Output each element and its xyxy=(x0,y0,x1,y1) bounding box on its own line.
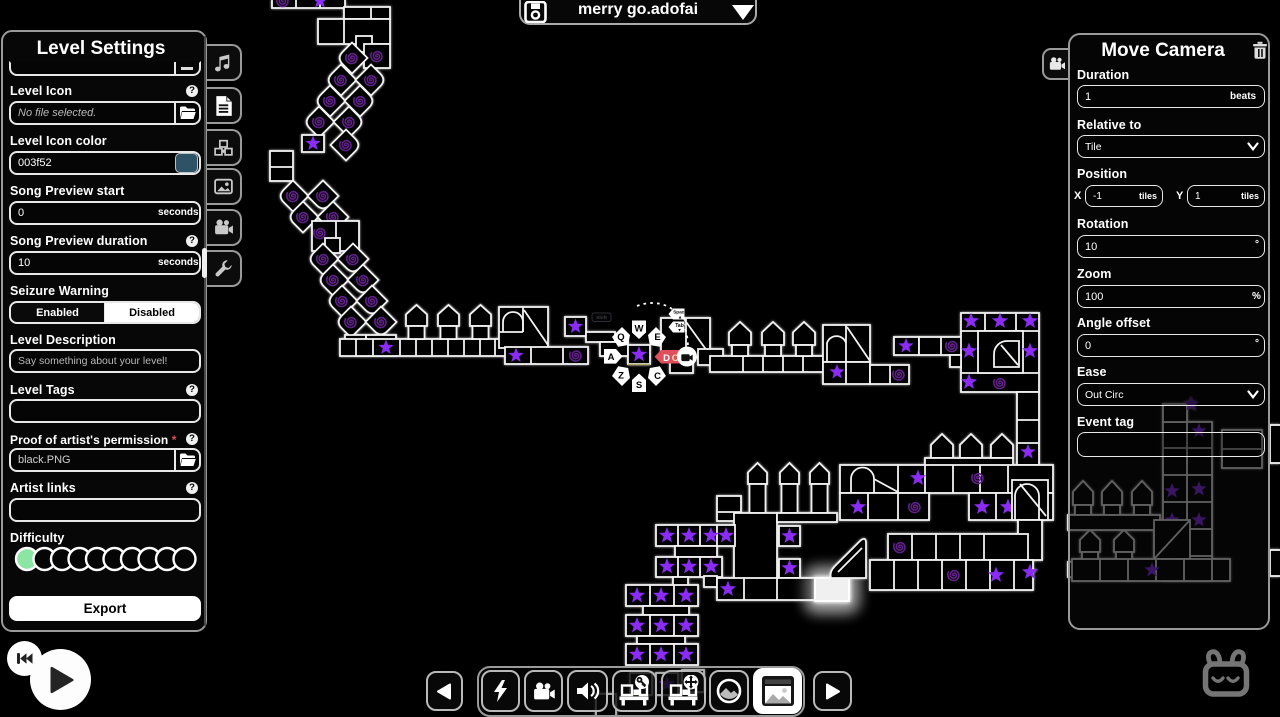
svg-text:D: D xyxy=(663,353,670,364)
svg-text:A: A xyxy=(608,352,615,363)
svg-text:Q: Q xyxy=(617,332,624,343)
svg-text:▲: ▲ xyxy=(678,315,682,320)
svg-text:S: S xyxy=(636,380,642,391)
svg-text:▼: ▼ xyxy=(677,328,681,333)
svg-text:W: W xyxy=(635,324,644,335)
svg-text:E: E xyxy=(654,332,660,343)
svg-text:Z: Z xyxy=(618,371,624,382)
svg-text:C: C xyxy=(654,371,661,382)
svg-text:Shift: Shift xyxy=(596,315,607,321)
